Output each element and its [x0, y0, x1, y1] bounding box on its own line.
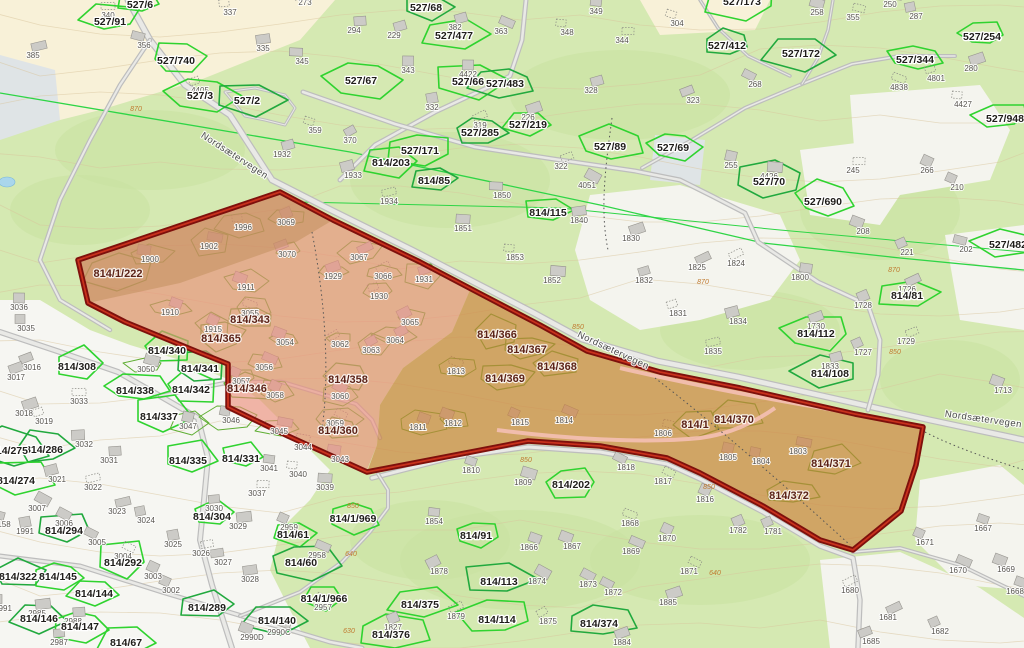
elevation-label: 630: [343, 628, 355, 635]
building-number-label: 356: [137, 41, 151, 50]
parcel-label: 527/344: [896, 54, 934, 66]
parcel-label: 814/91: [460, 530, 492, 542]
building-number-label: 1804: [752, 457, 770, 466]
building-number-label: 4801: [927, 74, 945, 83]
building-number-label: 3003: [144, 572, 162, 581]
parcel-label: 527/172: [782, 48, 820, 60]
elevation-label: 850: [520, 457, 532, 464]
building-number-label: 1818: [617, 463, 635, 472]
parcel-label: 527/70: [753, 176, 785, 188]
building-number-label: 370: [343, 136, 357, 145]
building-number-label: 1728: [854, 301, 872, 310]
building-number-label: 1668: [1006, 587, 1024, 596]
building: [0, 595, 2, 604]
cadastral-map[interactable]: 8708708708508508508508506406406303403563…: [0, 0, 1024, 648]
building-number-label: 266: [920, 166, 934, 175]
parcel-label: 527/89: [594, 141, 626, 153]
building-number-label: 1878: [430, 567, 448, 576]
elevation-label: 850: [347, 503, 359, 510]
building-number-label: 1670: [949, 566, 967, 575]
building-number-label: 255: [724, 161, 738, 170]
building-number-label: 202: [959, 245, 973, 254]
building: [73, 607, 86, 617]
building-number-label: 3023: [108, 507, 126, 516]
building-number-label: 4051: [578, 181, 596, 190]
building-number-label: 1932: [273, 150, 291, 159]
building-number-label: 3044: [294, 443, 312, 452]
building-number-label: 1884: [613, 638, 631, 647]
building-number-label: 344: [615, 36, 629, 45]
building-number-label: 1930: [370, 292, 388, 301]
building: [462, 60, 473, 70]
parcel-label: 527/67: [345, 75, 377, 87]
building-number-label: 1680: [841, 586, 859, 595]
parcel-label: 814/85: [418, 175, 450, 187]
elevation-label: 850: [703, 484, 715, 491]
zone-parcel-label: 814/360: [318, 425, 358, 437]
parcel-label: 814/274: [0, 475, 35, 487]
elevation-label: 640: [345, 551, 357, 558]
building-number-label: 359: [308, 126, 322, 135]
building-number-label: 3070: [278, 250, 296, 259]
building-number-label: 3056: [255, 363, 273, 372]
building-number-label: 355: [846, 13, 860, 22]
parcel-label: 527/173: [723, 0, 761, 8]
parcel-label: 814/304: [193, 511, 231, 523]
parcel-label: 527/690: [804, 196, 842, 208]
elevation-label: 870: [697, 279, 709, 286]
building-number-label: 3019: [35, 417, 53, 426]
parcel-label: 814/81: [891, 290, 923, 302]
parcel-label: 527/740: [157, 55, 195, 67]
parcel-label: 814/375: [401, 599, 439, 611]
building: [210, 548, 224, 558]
parcel-label: 814/337: [140, 411, 178, 423]
building-number-label: 1902: [200, 242, 218, 251]
building-number-label: 1854: [425, 517, 443, 526]
building-number-label: 3036: [10, 303, 28, 312]
zone-parcel-label: 814/369: [485, 373, 525, 385]
building-number-label: 1685: [862, 637, 880, 646]
parcel-label: 814/203: [372, 157, 410, 169]
building-number-label: 1817: [654, 477, 672, 486]
building-number-label: 1872: [604, 588, 622, 597]
parcel-label: 527/948: [986, 113, 1024, 125]
parcel-label: 527/285: [461, 127, 499, 139]
building-number-label: 3045: [270, 427, 288, 436]
parcel-label: 527/2: [234, 95, 260, 107]
building-number-label: 1866: [520, 543, 538, 552]
building-number-label: 1713: [994, 386, 1012, 395]
building: [571, 206, 586, 217]
building-number-label: 1996: [234, 223, 252, 232]
building-number-label: 280: [964, 64, 978, 73]
building-number-label: 3066: [374, 272, 392, 281]
building-number-label: 3064: [386, 336, 404, 345]
elevation-label: 870: [130, 106, 142, 113]
building: [289, 48, 302, 57]
building-number-label: 345: [295, 57, 309, 66]
parcel-label: 527/219: [509, 119, 547, 131]
building: [242, 565, 257, 576]
elevation-label: 870: [888, 267, 900, 274]
building-number-label: 1867: [563, 542, 581, 551]
parcel-label: 814/341: [181, 363, 219, 375]
building-number-label: 1830: [622, 234, 640, 243]
building-number-label: 3037: [248, 489, 266, 498]
building: [799, 263, 812, 274]
building-number-label: 3062: [331, 340, 349, 349]
building-number-label: 335: [256, 44, 270, 53]
building-number-label: 294: [347, 26, 361, 35]
building: [109, 446, 122, 456]
zone-parcel-label: 814/1/222: [94, 268, 143, 280]
map-canvas[interactable]: 8708708708508508508508506406406303403563…: [0, 0, 1024, 648]
building: [15, 315, 25, 324]
parcel-label: 814/342: [172, 384, 210, 396]
zone-parcel-label: 814/346: [227, 383, 267, 395]
vegetation-patch: [10, 175, 150, 245]
building-number-label: 304: [670, 19, 684, 28]
zone-parcel-label: 814/371: [811, 458, 851, 470]
building-number-label: 1781: [764, 527, 782, 536]
building-number-label: 3022: [84, 483, 102, 492]
building: [767, 161, 783, 172]
parcel-label: 814/335: [169, 455, 207, 467]
building-number-label: 337: [223, 8, 237, 17]
building-number-label: 3029: [229, 522, 247, 531]
building-number-label: 229: [387, 31, 401, 40]
building-number-label: 1851: [454, 224, 472, 233]
building-number-label: 1853: [506, 253, 524, 262]
parcel-label: 814/376: [372, 629, 410, 641]
zone-parcel-label: 814/1: [681, 419, 709, 431]
building-number-label: 2991: [0, 604, 12, 613]
building-number-label: 1869: [622, 547, 640, 556]
building: [318, 473, 333, 483]
building-number-label: 1873: [579, 580, 597, 589]
building-number-label: 1934: [380, 197, 398, 206]
building-number-label: 3063: [362, 346, 380, 355]
building-number-label: 1824: [727, 259, 745, 268]
parcel-label: 814/67: [110, 637, 142, 648]
building-number-label: 1816: [696, 495, 714, 504]
building-number-label: 1671: [916, 538, 934, 547]
building-number-label: 3025: [164, 540, 182, 549]
parcel-label: 527/3: [187, 90, 213, 102]
building-number-label: 3002: [162, 586, 180, 595]
parcel-label: 527/6: [127, 0, 153, 11]
building-number-label: 3031: [100, 456, 118, 465]
parcel-label: 814/115: [529, 207, 567, 219]
building-number-label: 210: [950, 183, 964, 192]
building-number-label: 1814: [555, 416, 573, 425]
building-number-label: 3043: [331, 455, 349, 464]
building-number-label: 3069: [277, 218, 295, 227]
building-number-label: 273: [298, 0, 312, 7]
building-number-label: 3032: [75, 440, 93, 449]
parcel-label: 814/275: [0, 445, 28, 457]
parcel-label: 814/114: [478, 614, 516, 626]
building-number-label: 3026: [192, 549, 210, 558]
building-number-label: 1871: [680, 567, 698, 576]
building-number-label: 158: [0, 520, 11, 529]
building-number-label: 1870: [658, 534, 676, 543]
parcel-label: 527/412: [708, 40, 746, 52]
parcel-label: 814/1/966: [301, 593, 348, 605]
building-number-label: 1933: [344, 171, 362, 180]
zone-parcel-label: 814/366: [477, 329, 517, 341]
building-number-label: 3018: [15, 409, 33, 418]
parcel-label: 814/144: [75, 588, 113, 600]
parcel-label: 814/147: [61, 621, 99, 633]
building-number-label: 4838: [890, 83, 908, 92]
building-number-label: 1929: [324, 272, 342, 281]
parcel-label: 814/286: [25, 444, 63, 456]
parcel-label: 527/254: [963, 31, 1001, 43]
building-number-label: 3028: [241, 575, 259, 584]
building-number-label: 3021: [48, 475, 66, 484]
parcel-label: 527/482: [989, 239, 1024, 251]
building-number-label: 1667: [974, 524, 992, 533]
parcel-label: 814/145: [39, 571, 77, 583]
building-number-label: 1911: [237, 283, 255, 292]
building-number-label: 3065: [401, 318, 419, 327]
building: [354, 16, 367, 26]
pond: [0, 177, 15, 187]
building-number-label: 1806: [654, 429, 672, 438]
parcel-label: 814/61: [277, 529, 309, 541]
parcel-label: 814/292: [104, 557, 142, 569]
building-number-label: 343: [401, 66, 415, 75]
building-number-label: 268: [748, 80, 762, 89]
building-number-label: 3067: [350, 253, 368, 262]
building-number-label: 250: [883, 0, 897, 9]
zone-parcel-label: 814/358: [328, 374, 368, 386]
building-number-label: 221: [900, 248, 914, 257]
parcel-label: 814/108: [811, 368, 849, 380]
building-number-label: 3041: [260, 464, 278, 473]
building-number-label: 1991: [16, 527, 34, 536]
building-number-label: 3024: [137, 516, 155, 525]
parcel-label: 814/340: [148, 345, 186, 357]
parcel-label: 814/113: [480, 576, 518, 588]
building-number-label: 1852: [543, 276, 561, 285]
building-number-label: 1681: [879, 613, 897, 622]
building-number-label: 1831: [669, 309, 687, 318]
building-number-label: 1868: [621, 519, 639, 528]
building-number-label: 328: [584, 86, 598, 95]
building-number-label: 1910: [161, 308, 179, 317]
parcel-label: 814/146: [20, 613, 58, 625]
parcel-label: 814/140: [258, 615, 296, 627]
parcel-label: 527/69: [657, 142, 689, 154]
building-number-label: 1729: [897, 337, 915, 346]
building: [208, 495, 220, 504]
elevation-label: 850: [889, 349, 901, 356]
building-number-label: 385: [26, 51, 40, 60]
building: [456, 214, 471, 224]
zone-parcel-label: 814/343: [230, 314, 270, 326]
parcel-label: 527/171: [401, 145, 439, 157]
building-number-label: 3017: [7, 373, 25, 382]
building-number-label: 3033: [70, 397, 88, 406]
building-number-label: 245: [846, 166, 860, 175]
building-number-label: 1669: [997, 565, 1015, 574]
building-number-label: 1835: [704, 347, 722, 356]
building-number-label: 3005: [88, 538, 106, 547]
building-number-label: 363: [494, 27, 508, 36]
parcel-label: 527/66: [452, 76, 484, 88]
building-number-label: 1805: [719, 453, 737, 462]
building: [428, 507, 440, 516]
building-number-label: 3060: [331, 392, 349, 401]
parcel-label: 814/331: [222, 453, 260, 465]
building-number-label: 1815: [511, 418, 529, 427]
building-number-label: 1879: [447, 612, 465, 621]
building-number-label: 2987: [50, 638, 68, 647]
building: [402, 56, 413, 66]
elevation-label: 640: [709, 570, 721, 577]
building-number-label: 2990C: [267, 628, 291, 637]
building-number-label: 1825: [688, 263, 706, 272]
parcel-label: 814/60: [285, 557, 317, 569]
building: [550, 265, 566, 276]
parcel-label: 814/112: [797, 328, 835, 340]
building-number-label: 1850: [493, 191, 511, 200]
building-number-label: 1782: [729, 526, 747, 535]
parcel-label: 527/68: [410, 2, 442, 14]
parcel-label: 527/91: [94, 16, 126, 28]
building-number-label: 208: [856, 227, 870, 236]
building-number-label: 287: [909, 12, 923, 21]
zone-parcel-label: 814/365: [201, 333, 241, 345]
parcel-label: 814/308: [58, 361, 96, 373]
building-number-label: 1832: [635, 276, 653, 285]
building-number-label: 1900: [141, 255, 159, 264]
building-number-label: 4427: [954, 100, 972, 109]
building: [134, 506, 146, 517]
building-number-label: 3046: [222, 416, 240, 425]
building-number-label: 258: [810, 8, 824, 17]
parcel-label: 814/374: [580, 618, 618, 630]
building: [255, 34, 270, 45]
building-number-label: 1811: [409, 423, 427, 432]
building: [489, 182, 502, 191]
building-number-label: 1874: [528, 577, 546, 586]
building-number-label: 3039: [316, 483, 334, 492]
building: [263, 454, 275, 463]
building-number-label: 349: [589, 7, 603, 16]
building-number-label: 3027: [214, 558, 232, 567]
parcel-label: 814/289: [188, 602, 226, 614]
building-number-label: 3054: [276, 338, 294, 347]
building-number-label: 1727: [854, 348, 872, 357]
building-number-label: 3035: [17, 324, 35, 333]
building: [71, 430, 85, 441]
building-number-label: 3058: [266, 391, 284, 400]
parcel-label: 814/1/969: [330, 513, 377, 525]
zone-parcel-label: 814/367: [507, 344, 547, 356]
building-number-label: 2990D: [240, 633, 264, 642]
building-number-label: 1682: [931, 627, 949, 636]
building-number-label: 348: [560, 28, 574, 37]
parcel-label: 527/477: [435, 30, 473, 42]
parcel-label: 814/202: [552, 479, 590, 491]
building-number-label: 3050: [137, 365, 155, 374]
building-number-label: 1812: [444, 419, 462, 428]
building-number-label: 3007: [28, 504, 46, 513]
building-number-label: 1813: [447, 367, 465, 376]
building-number-label: 1800: [791, 273, 809, 282]
building-number-label: 1931: [415, 275, 433, 284]
building-number-label: 1809: [514, 478, 532, 487]
building-number-label: 1840: [570, 216, 588, 225]
building: [13, 293, 24, 303]
parcel-label: 814/294: [45, 525, 83, 537]
building: [904, 2, 916, 13]
building-number-label: 332: [425, 103, 439, 112]
building-number-label: 1875: [539, 617, 557, 626]
building-number-label: 322: [554, 162, 568, 171]
building-number-label: 1885: [659, 598, 677, 607]
building-number-label: 323: [686, 96, 700, 105]
parcel-label: 814/322: [0, 571, 37, 583]
zone-parcel-label: 814/372: [769, 490, 809, 502]
building-number-label: 1803: [789, 447, 807, 456]
building-number-label: 1834: [729, 317, 747, 326]
zone-parcel-label: 814/370: [714, 414, 754, 426]
building: [590, 0, 602, 7]
building-number-label: 3016: [23, 363, 41, 372]
building-number-label: 3047: [179, 422, 197, 431]
building-number-label: 1810: [462, 466, 480, 475]
zone-parcel-label: 814/368: [537, 361, 577, 373]
building-number-label: 3040: [289, 470, 307, 479]
parcel-label: 814/338: [116, 385, 154, 397]
parcel-label: 527/483: [486, 78, 524, 90]
